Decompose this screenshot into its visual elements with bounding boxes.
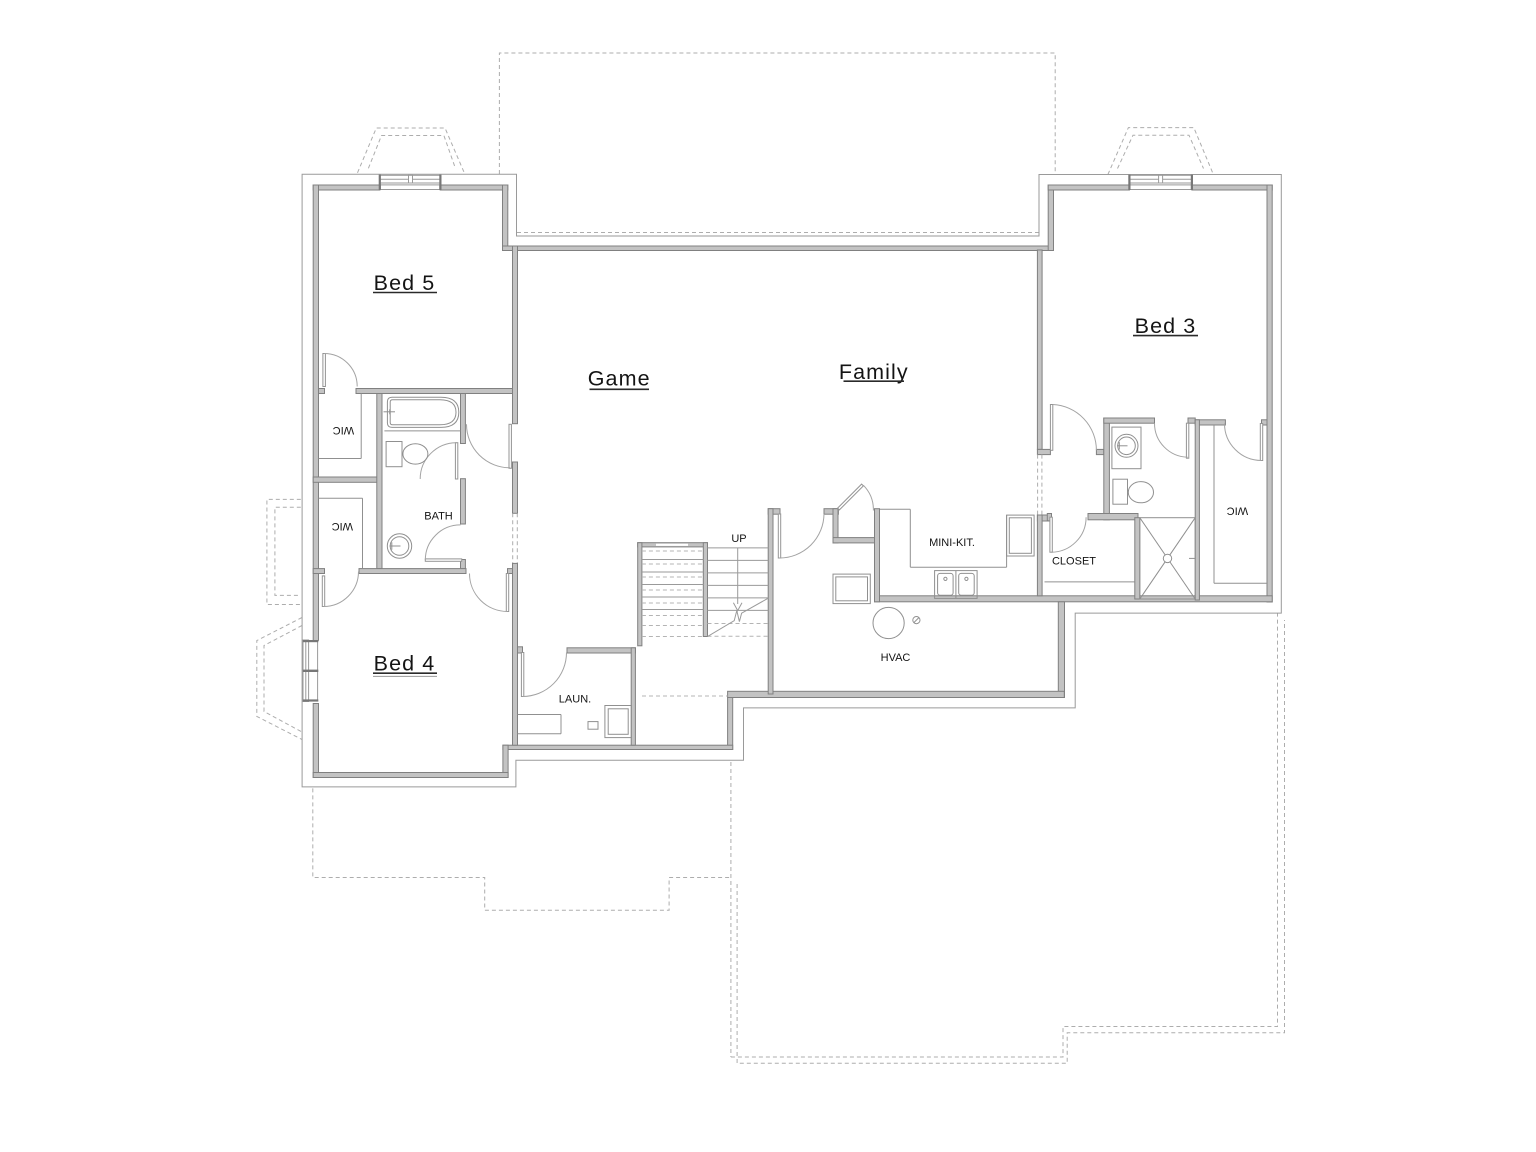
svg-text:WIC: WIC [1227, 505, 1248, 517]
svg-text:Bed 3: Bed 3 [1135, 314, 1197, 338]
svg-text:Bed 4: Bed 4 [374, 652, 436, 676]
svg-text:Game: Game [588, 367, 651, 391]
svg-text:WIC: WIC [332, 520, 353, 532]
svg-text:MINI-KIT.: MINI-KIT. [929, 537, 975, 549]
svg-text:WIC: WIC [333, 424, 354, 436]
svg-text:Bed 5: Bed 5 [374, 271, 436, 295]
svg-text:BATH: BATH [424, 511, 453, 523]
svg-text:UP: UP [731, 533, 746, 545]
svg-text:LAUN.: LAUN. [559, 694, 591, 706]
svg-text:CLOSET: CLOSET [1052, 556, 1096, 568]
svg-text:HVAC: HVAC [881, 652, 911, 664]
